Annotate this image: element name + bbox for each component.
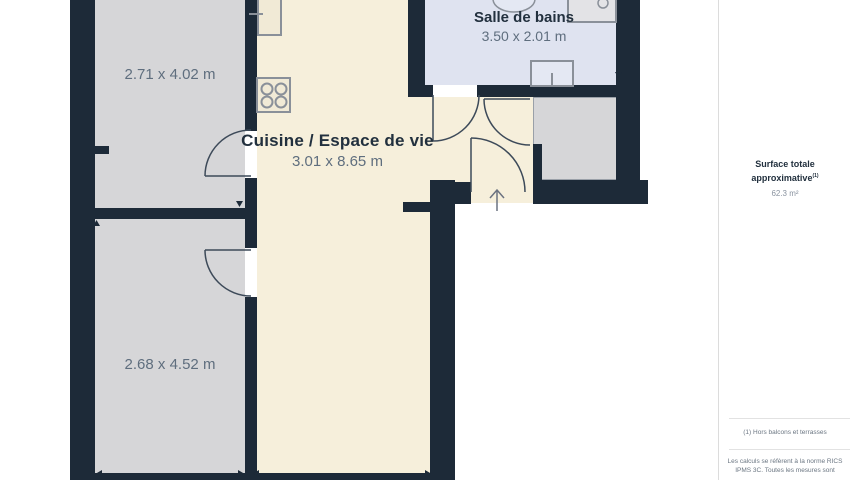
wall-left-stub xyxy=(95,146,109,154)
wall-outer-bottom xyxy=(70,473,455,480)
wall-pier-stub xyxy=(403,202,430,212)
footnote-reference: (1) xyxy=(812,173,818,179)
footnote-1-block: (1) Hors balcons et terrasses xyxy=(719,428,850,437)
bedroom-top-floor xyxy=(95,0,245,208)
wall-bottom-right-band xyxy=(533,180,648,204)
wall-entry-stub xyxy=(455,182,471,204)
wall-bathroom-bottom-right xyxy=(477,85,618,97)
sidebar-divider-1 xyxy=(729,418,850,419)
footnote-1-text: (1) Hors balcons et terrasses xyxy=(719,428,850,437)
total-surface-label: Surface totale approximative(1) xyxy=(719,158,850,184)
bathroom-dimensions: 3.50 x 2.01 m xyxy=(430,28,618,44)
bedroom-bottom-floor xyxy=(95,219,245,473)
bedroom-top-dimensions: 2.71 x 4.02 m xyxy=(95,66,245,83)
footnote-2-text: Les calculs se réfèrent à la norme RICS … xyxy=(719,457,850,475)
total-surface-block: Surface totale approximative(1) 62.3 m² xyxy=(719,158,850,198)
wall-living-right xyxy=(430,180,455,480)
wall-mid-lower xyxy=(245,297,257,480)
wall-outer-left xyxy=(70,0,95,480)
wall-mid-upper xyxy=(245,0,257,131)
footnote-2-block: Les calculs se réfèrent à la norme RICS … xyxy=(719,457,850,475)
bedroom-top-label: 2.71 x 4.02 m xyxy=(95,66,245,83)
total-surface-value: 62.3 m² xyxy=(719,189,850,198)
wall-bathroom-left xyxy=(408,0,425,97)
bathroom-label: Salle de bains 3.50 x 2.01 m xyxy=(430,9,618,44)
wall-bathroom-bottom-left xyxy=(408,85,433,97)
closet-floor xyxy=(533,97,618,180)
bedroom-bottom-label: 2.68 x 4.52 m xyxy=(95,356,245,373)
living-room-dimensions: 3.01 x 8.65 m xyxy=(240,153,435,170)
wall-outer-right xyxy=(616,0,640,182)
living-floor xyxy=(257,0,430,480)
wall-bedroom-partition xyxy=(95,208,257,219)
bedroom-bottom-dimensions: 2.68 x 4.52 m xyxy=(95,356,245,373)
bathroom-name: Salle de bains xyxy=(430,9,618,26)
living-room-label: Cuisine / Espace de vie 3.01 x 8.65 m xyxy=(240,131,435,170)
total-surface-label-text: Surface totale approximative xyxy=(751,159,814,183)
living-room-name: Cuisine / Espace de vie xyxy=(240,131,435,151)
info-sidebar: Surface totale approximative(1) 62.3 m² … xyxy=(718,0,850,480)
sidebar-divider-2 xyxy=(729,449,850,450)
